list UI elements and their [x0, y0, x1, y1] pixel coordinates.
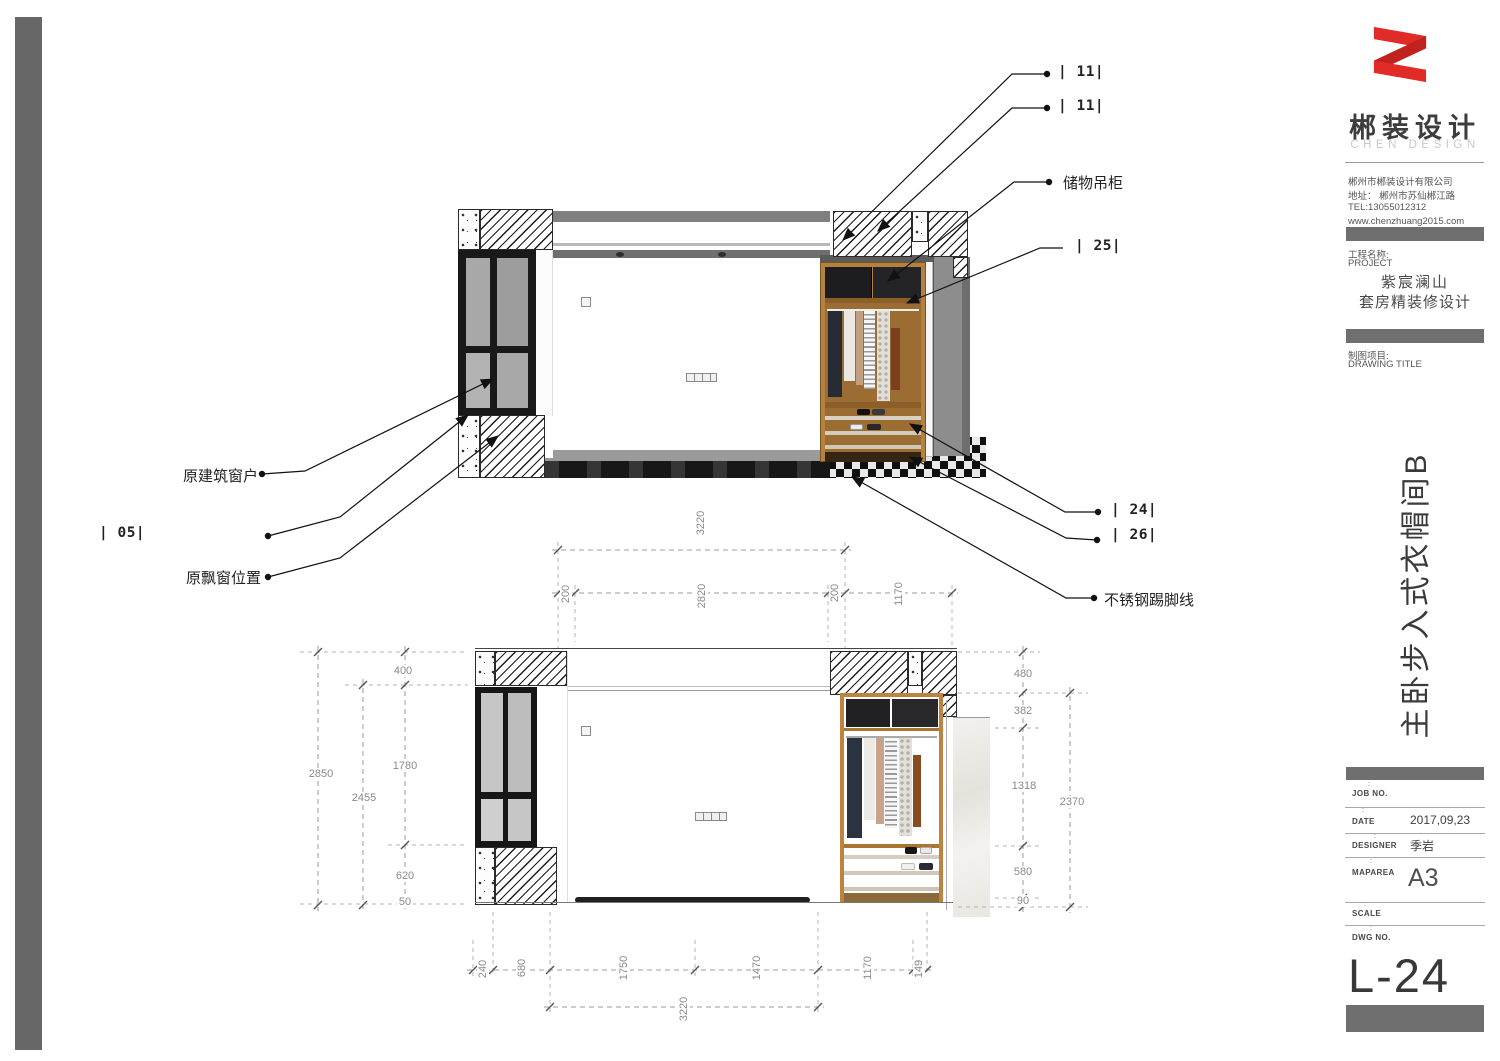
dim-label: 1170 — [893, 580, 905, 608]
dim-label: 3220 — [695, 509, 707, 537]
left-margin-bar — [15, 17, 42, 1050]
window-pane — [481, 693, 503, 792]
callout-05: | 05| — [99, 525, 145, 541]
dim-label: 3220 — [678, 995, 690, 1023]
callout-11b: | 11| — [1058, 98, 1104, 114]
dim-label: 1318 — [1010, 780, 1038, 792]
wall-corner-line — [567, 651, 568, 902]
callout-skirting: 不锈钢踢脚线 — [1104, 589, 1194, 610]
window-pane — [508, 693, 531, 792]
shoe-item — [857, 409, 870, 415]
floor-rug — [545, 458, 830, 478]
dim-label: 2850 — [307, 768, 335, 780]
divider — [1345, 162, 1484, 163]
field-separator — [1345, 902, 1485, 903]
hatched-lintel — [830, 651, 908, 695]
clothes-item — [864, 311, 875, 389]
ceiling-light — [616, 252, 624, 257]
drawing-sheet: { "brand": { "logo": "red-folded-z-ribbo… — [0, 0, 1500, 1061]
socket-row — [695, 812, 727, 821]
brand-name-en: CHEN DESIGN — [1345, 139, 1485, 151]
drawing-title-label-en: DRAWING TITLE — [1348, 359, 1422, 370]
wall-switch — [581, 726, 591, 736]
dim-label: 680 — [516, 957, 528, 979]
concrete-column — [912, 211, 928, 242]
hatched-lintel — [928, 211, 968, 257]
dim-label: 200 — [560, 583, 572, 605]
field-separator — [1345, 925, 1485, 926]
storage-box — [846, 699, 890, 727]
storage-box — [873, 267, 921, 298]
wardrobe-plinth — [825, 452, 921, 462]
field-label-maparea: MAPAREA — [1352, 868, 1395, 877]
wardrobe-side-panel — [925, 260, 933, 457]
shoe-item — [850, 424, 863, 430]
company-logo-icon — [1354, 6, 1446, 106]
wall-gap-line — [946, 700, 947, 910]
drawing-title-vertical: 主卧步入式衣帽间B — [1391, 451, 1435, 738]
field-tick: : — [1368, 781, 1370, 788]
clothes-item — [885, 738, 897, 828]
project-name-2: 套房精装修设计 — [1345, 291, 1485, 312]
callout-bay-window: 原飘窗位置 — [153, 567, 261, 588]
callout-25: | 25| — [1075, 238, 1121, 254]
project-name-1: 紫宸澜山 — [1345, 271, 1485, 292]
hatched-lintel — [833, 211, 912, 257]
field-value-date: 2017,09,23 — [1410, 813, 1470, 827]
dim-label: 382 — [1012, 705, 1034, 717]
field-separator — [1345, 857, 1485, 858]
shoe-shelf — [844, 887, 939, 891]
dim-label: 1170 — [862, 954, 874, 982]
field-separator — [1345, 833, 1485, 834]
clothes-item — [844, 311, 855, 381]
shoe-shelf — [825, 431, 921, 435]
cove-line — [567, 686, 830, 687]
dim-label: 2370 — [1058, 796, 1086, 808]
window-pane — [497, 258, 528, 346]
concrete-column — [458, 209, 480, 250]
section-bar — [1346, 767, 1484, 780]
project-label-en: PROJECT — [1348, 258, 1392, 269]
hatched-wall — [495, 651, 567, 686]
concrete-column — [458, 415, 480, 478]
hatched-lintel — [922, 651, 957, 695]
concrete-column — [908, 651, 922, 686]
storage-box — [892, 699, 938, 727]
clothes-item — [913, 755, 921, 827]
field-label-designer: DESIGNER — [1352, 841, 1397, 850]
hatched-wall — [953, 257, 968, 278]
field-tick: : — [1370, 925, 1372, 932]
dim-label: 50 — [397, 896, 413, 908]
concrete-column — [475, 847, 495, 905]
leader-lines — [262, 74, 1098, 598]
dim-label: 149 — [913, 958, 925, 980]
clothes-item — [877, 311, 890, 401]
field-label-dwg-no: DWG NO. — [1352, 933, 1391, 942]
floor-line — [475, 902, 953, 903]
window-pane — [466, 353, 490, 408]
field-tick: : — [1364, 901, 1366, 908]
section-bar — [1346, 227, 1484, 241]
clothes-item — [864, 738, 875, 820]
clothes-item — [828, 311, 842, 397]
shoe-item — [920, 847, 932, 854]
hatched-infill — [495, 847, 557, 905]
dim-label: 480 — [1012, 668, 1034, 680]
field-label-date: DATE — [1352, 817, 1375, 826]
socket-row — [686, 373, 717, 382]
company-web: www.chenzhuang2015.com — [1348, 216, 1464, 227]
side-wall-edge — [962, 257, 970, 456]
shoe-shelf — [844, 855, 939, 859]
window-pane — [466, 258, 490, 346]
clothes-item — [891, 328, 900, 390]
wardrobe-shelf — [844, 728, 939, 731]
light-cove-line — [553, 243, 830, 246]
shoe-shelf — [844, 871, 939, 875]
storage-box — [825, 267, 872, 298]
ceiling-line — [475, 648, 957, 649]
shoe-item — [919, 863, 933, 870]
field-tick: : — [1370, 858, 1372, 865]
cove-line — [567, 690, 830, 691]
window-jamb — [536, 250, 553, 416]
section-bar — [1346, 1005, 1484, 1032]
field-label-scale: SCALE — [1352, 909, 1381, 918]
field-tick: : — [1374, 833, 1376, 840]
window-pane — [497, 353, 528, 408]
dim-label: 2820 — [696, 582, 708, 610]
company-address: 地址： 郴州市苏仙郴江路 — [1348, 188, 1455, 202]
clothes-item — [847, 738, 862, 838]
dim-label: 240 — [477, 958, 489, 980]
section-bar — [1346, 329, 1484, 343]
field-value-designer: 季岩 — [1410, 837, 1434, 854]
dim-label: 1470 — [751, 954, 763, 982]
hatched-infill — [480, 415, 545, 478]
sheet-number: L-24 — [1348, 948, 1450, 1003]
callout-24: | 24| — [1111, 502, 1157, 518]
leader-dots — [259, 71, 1101, 601]
callout-11a: | 11| — [1058, 64, 1104, 80]
dim-label: 1780 — [391, 760, 419, 772]
dim-label: 2455 — [350, 792, 378, 804]
shoe-item — [905, 847, 917, 854]
shoe-shelf — [825, 416, 921, 420]
shoe-item — [872, 409, 885, 415]
callout-storage-cabinet: 储物吊柜 — [1063, 172, 1123, 193]
dim-label: 90 — [1015, 895, 1031, 907]
ceiling-band — [545, 211, 830, 222]
wall-switch — [581, 297, 591, 307]
company-tel: TEL:13055012312 — [1348, 202, 1426, 213]
hatched-wall — [480, 209, 553, 250]
skirting-strip — [553, 450, 825, 458]
shoe-item — [901, 863, 915, 870]
field-value-maparea: A3 — [1408, 864, 1439, 893]
field-separator — [1345, 807, 1485, 808]
concrete-column — [475, 651, 495, 686]
window-pane — [481, 799, 503, 841]
dim-label: 400 — [392, 665, 414, 677]
dim-label: 620 — [394, 870, 416, 882]
marble-wall — [953, 717, 990, 917]
dim-label: 200 — [829, 582, 841, 604]
clothes-item — [876, 738, 884, 824]
dim-label: 1750 — [618, 954, 630, 982]
light-cove-band — [553, 250, 830, 258]
clothes-item — [856, 311, 863, 385]
callout-original-window: 原建筑窗户 — [150, 465, 258, 486]
company-name: 郴州市郴装设计有限公司 — [1348, 174, 1453, 188]
hatched-wall — [942, 695, 957, 717]
clothes-item — [899, 738, 912, 836]
window-pane — [508, 799, 531, 841]
ceiling-light — [718, 252, 726, 257]
shoe-shelf — [825, 445, 921, 449]
callout-26: | 26| — [1111, 527, 1157, 543]
field-label-job-no: JOB NO. — [1352, 789, 1388, 798]
dim-label: 580 — [1012, 866, 1034, 878]
field-tick: : — [1362, 807, 1364, 814]
shoe-item — [867, 424, 881, 430]
